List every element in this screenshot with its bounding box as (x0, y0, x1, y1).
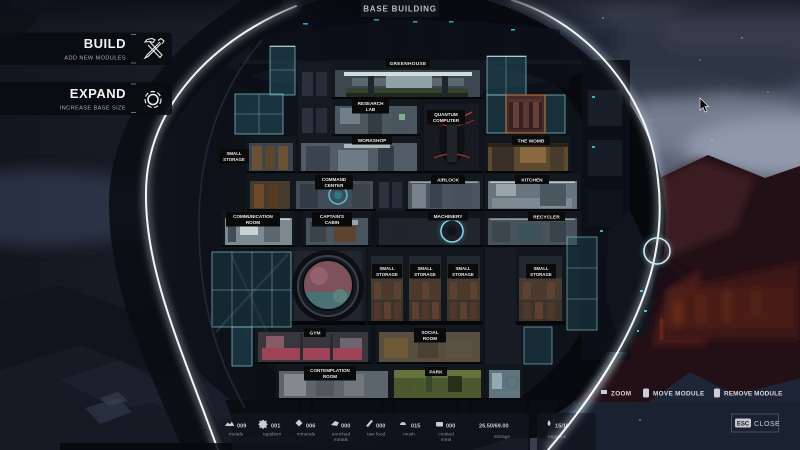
svg-text:SMALL: SMALL (417, 266, 432, 271)
svg-text:009: 009 (237, 424, 246, 430)
svg-text:MOVE MODULE: MOVE MODULE (653, 391, 705, 398)
svg-text:GREENHOUSE: GREENHOUSE (389, 61, 427, 67)
svg-text:ADD NEW MODULES: ADD NEW MODULES (64, 56, 126, 62)
svg-text:000: 000 (341, 424, 350, 430)
svg-text:mush: mush (403, 432, 415, 438)
svg-text:minerals: minerals (297, 432, 316, 438)
svg-text:meal: meal (441, 437, 451, 443)
svg-text:CONTEMPLATION: CONTEMPLATION (310, 368, 350, 373)
svg-text:raw food: raw food (367, 432, 386, 438)
svg-text:rapidium: rapidium (263, 432, 281, 438)
svg-text:COMMAND: COMMAND (322, 177, 347, 182)
svg-text:enriched: enriched (332, 432, 351, 438)
svg-text:QUANTUM: QUANTUM (434, 112, 458, 117)
svg-text:CAPTAIN'S: CAPTAIN'S (320, 214, 344, 219)
svg-text:SMALL: SMALL (226, 151, 241, 156)
svg-text:STORAGE: STORAGE (530, 272, 552, 277)
svg-text:ROOM: ROOM (423, 336, 437, 341)
svg-text:KITCHEN: KITCHEN (521, 178, 543, 184)
svg-text:AIRLOCK: AIRLOCK (437, 178, 459, 184)
svg-text:26.50/69.00: 26.50/69.00 (479, 424, 509, 430)
svg-text:001: 001 (271, 424, 280, 430)
svg-text:STORAGE: STORAGE (452, 272, 474, 277)
svg-text:STORAGE: STORAGE (223, 157, 245, 162)
svg-text:INCREASE BASE SIZE: INCREASE BASE SIZE (60, 106, 126, 112)
svg-text:ROOM: ROOM (323, 374, 337, 379)
svg-text:ROOM: ROOM (246, 220, 260, 225)
svg-text:MACHINERY: MACHINERY (434, 214, 464, 220)
svg-text:STORAGE: STORAGE (414, 272, 436, 277)
svg-text:ESC: ESC (737, 422, 750, 428)
svg-text:SOCIAL: SOCIAL (421, 330, 439, 335)
svg-text:RECYCLER: RECYCLER (533, 215, 560, 221)
svg-text:000: 000 (376, 424, 385, 430)
svg-text:LAB: LAB (366, 107, 376, 112)
svg-text:COMPUTER: COMPUTER (433, 118, 460, 123)
svg-text:EXPAND: EXPAND (70, 86, 126, 101)
svg-text:ZOOM: ZOOM (611, 391, 631, 398)
svg-text:BASE BUILDING: BASE BUILDING (363, 5, 437, 14)
svg-text:WORKSHOP: WORKSHOP (358, 138, 388, 144)
svg-text:SMALL: SMALL (455, 266, 470, 271)
svg-text:REMOVE MODULE: REMOVE MODULE (724, 391, 783, 398)
svg-text:GYM: GYM (310, 331, 321, 337)
svg-text:CLOSE: CLOSE (754, 421, 780, 428)
svg-text:STORAGE: STORAGE (376, 272, 398, 277)
svg-text:SMALL: SMALL (379, 266, 394, 271)
svg-text:PARK: PARK (429, 370, 443, 376)
svg-text:RESEARCH: RESEARCH (358, 101, 384, 106)
svg-text:CABIN: CABIN (325, 220, 340, 225)
svg-text:BUILD: BUILD (84, 36, 126, 51)
svg-text:015: 015 (411, 424, 420, 430)
svg-text:storage: storage (494, 434, 510, 440)
svg-text:cooked: cooked (438, 432, 454, 438)
svg-text:006: 006 (306, 424, 315, 430)
svg-text:000: 000 (446, 424, 455, 430)
svg-text:SMALL: SMALL (533, 266, 548, 271)
svg-text:metals: metals (229, 432, 244, 438)
svg-text:THE WOMB: THE WOMB (518, 139, 545, 145)
svg-text:COMMUNICATION: COMMUNICATION (233, 214, 273, 219)
svg-text:metals: metals (334, 437, 349, 443)
svg-text:CENTER: CENTER (325, 183, 345, 188)
